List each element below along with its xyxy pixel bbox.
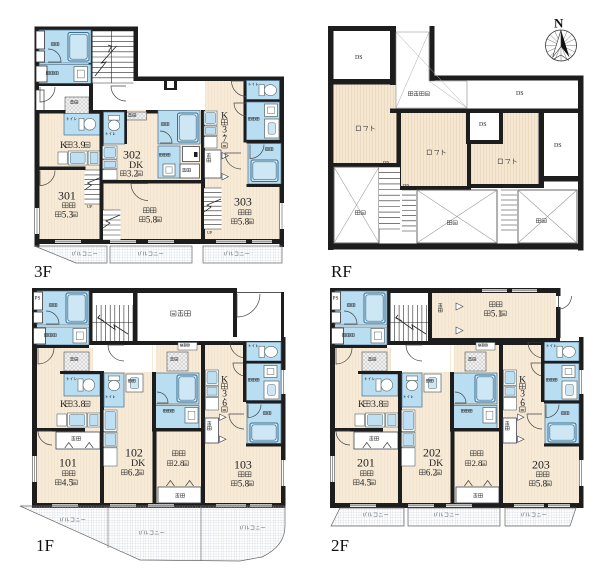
svg-text:3.8: 3.8 bbox=[73, 399, 85, 410]
svg-text:3F: 3F bbox=[34, 262, 52, 281]
svg-text:UP: UP bbox=[87, 204, 93, 209]
svg-text:RF: RF bbox=[331, 262, 352, 281]
svg-text:DS: DS bbox=[554, 143, 562, 149]
svg-text:2.8: 2.8 bbox=[472, 458, 483, 468]
svg-text:K: K bbox=[221, 112, 228, 122]
svg-text:3.9: 3.9 bbox=[73, 140, 85, 151]
svg-text:7: 7 bbox=[222, 135, 227, 145]
svg-text:UP: UP bbox=[207, 230, 213, 235]
svg-text:6.2: 6.2 bbox=[426, 467, 437, 477]
svg-text:303: 303 bbox=[234, 194, 252, 208]
svg-text:K: K bbox=[60, 399, 68, 410]
svg-text:K: K bbox=[358, 399, 366, 410]
svg-text:N: N bbox=[554, 16, 564, 31]
svg-text:301: 301 bbox=[58, 188, 76, 202]
svg-text:PS: PS bbox=[333, 296, 339, 302]
svg-text:6.2: 6.2 bbox=[128, 467, 139, 477]
svg-text:DS: DS bbox=[479, 122, 487, 128]
svg-text:5.1: 5.1 bbox=[491, 308, 502, 318]
svg-text:101: 101 bbox=[59, 455, 77, 469]
svg-text:PS: PS bbox=[35, 296, 41, 302]
svg-text:DS: DS bbox=[355, 55, 363, 61]
svg-text:1F: 1F bbox=[36, 536, 54, 555]
svg-text:3.2: 3.2 bbox=[127, 168, 138, 178]
svg-text:K: K bbox=[60, 140, 68, 151]
svg-text:6: 6 bbox=[520, 399, 525, 409]
svg-text:K: K bbox=[519, 376, 526, 386]
svg-text:2.8: 2.8 bbox=[174, 458, 185, 468]
svg-text:DN: DN bbox=[383, 160, 390, 165]
svg-text:K: K bbox=[221, 376, 228, 386]
svg-text:2F: 2F bbox=[331, 536, 349, 555]
svg-text:103: 103 bbox=[234, 457, 252, 471]
svg-text:201: 201 bbox=[357, 455, 375, 469]
svg-text:DS: DS bbox=[516, 91, 524, 97]
svg-text:6: 6 bbox=[222, 399, 227, 409]
svg-text:203: 203 bbox=[532, 457, 550, 471]
svg-text:3.8: 3.8 bbox=[371, 399, 383, 410]
svg-text:DN: DN bbox=[403, 183, 410, 188]
svg-text:DN: DN bbox=[503, 183, 510, 188]
